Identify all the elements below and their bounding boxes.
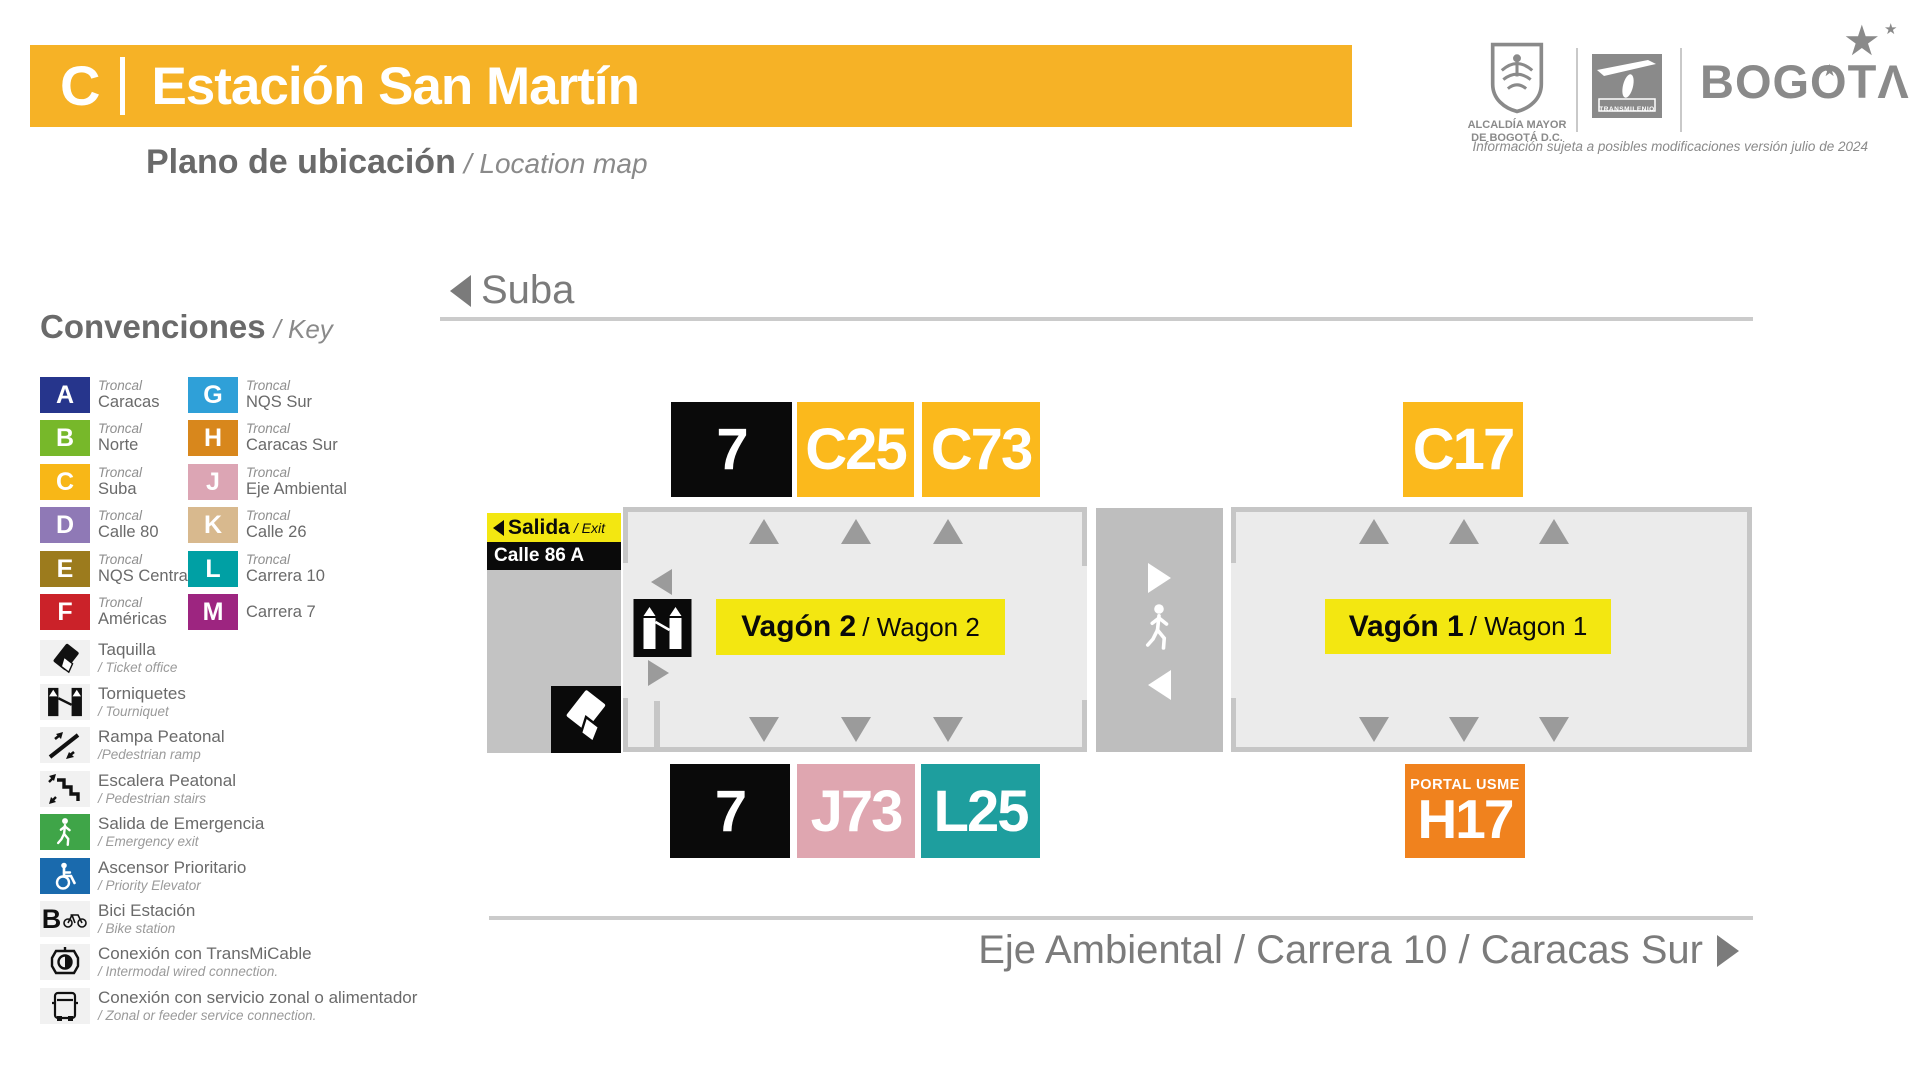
wagon-1-label-es: Vagón 1	[1349, 610, 1464, 644]
legend-item-transmicable: Conexión con TransMiCable/ Intermodal wi…	[40, 944, 312, 981]
station-name: Estación San Martín	[151, 60, 639, 113]
bogota-stylized-a: Λ	[1877, 55, 1909, 108]
legend-troncal-C: C TroncalSuba	[40, 464, 142, 500]
bus-icon	[40, 988, 90, 1024]
door-arrow-down-icon	[1539, 717, 1569, 742]
door-arrow-down-icon	[841, 717, 871, 742]
wagon-1-box: Vagón 1/ Wagon 1	[1231, 507, 1752, 752]
legend-item-taquilla: Taquilla/ Ticket office	[40, 640, 177, 677]
troncal-E-chip: E	[40, 551, 90, 587]
transmilenio-wordmark: TRANSMILENIO	[1592, 106, 1662, 113]
wagon-2-label-en: / Wagon 2	[862, 612, 980, 643]
exit-label-es: Salida	[508, 516, 570, 540]
troncal-J-chip: J	[188, 464, 238, 500]
arrow-left-icon	[1148, 670, 1171, 700]
pedestrian-icon	[1141, 596, 1177, 663]
alcaldia-shield-icon	[1486, 40, 1548, 116]
legend-title: Convenciones/ Key	[40, 308, 333, 346]
legend-title-en: / Key	[274, 314, 333, 344]
vestibule-wall	[654, 701, 660, 747]
escalera-icon	[40, 771, 90, 807]
door-arrow-down-icon	[1449, 717, 1479, 742]
legend-item-escalera: Escalera Peatonal/ Pedestrian stairs	[40, 771, 236, 808]
ascensor-icon	[40, 858, 90, 894]
troncal-A-chip: A	[40, 377, 90, 413]
salida-emergencia-icon	[40, 814, 90, 850]
rampa-icon	[40, 727, 90, 763]
legend-item-ascensor: Ascensor Prioritario/ Priority Elevator	[40, 858, 246, 895]
legend-troncal-D: D TroncalCalle 80	[40, 507, 159, 543]
h17-route-label: H17	[1418, 793, 1513, 845]
top-platform-line	[440, 317, 1753, 321]
legend-item-bus: Conexión con servicio zonal o alimentado…	[40, 988, 417, 1025]
route-badge-7-bottom: 7	[670, 764, 790, 858]
troncal-C-chip: C	[40, 464, 90, 500]
line-letter: C	[60, 58, 100, 114]
wagon-2-banner: Vagón 2/ Wagon 2	[716, 599, 1005, 655]
legend-troncal-H: H TroncalCaracas Sur	[188, 420, 338, 456]
alcaldia-logo: ALCALDÍA MAYOR DE BOGOTÁ D.C.	[1458, 40, 1576, 145]
legend-troncal-B: B TroncalNorte	[40, 420, 142, 456]
door-arrow-up-icon	[1359, 519, 1389, 544]
route-badge-7-top: 7	[671, 402, 792, 497]
star-icon: ★	[1884, 22, 1897, 37]
taquilla-icon	[40, 640, 90, 676]
legend-item-bici: B Bici Estación/ Bike station	[40, 901, 195, 938]
door-arrow-up-icon	[1449, 519, 1479, 544]
arrow-left-icon	[493, 520, 504, 536]
wagon-1-label-en: / Wagon 1	[1470, 611, 1588, 642]
route-badge-J73: J73	[797, 764, 915, 858]
subtitle: Plano de ubicación/ Location map	[146, 143, 648, 182]
bici-icon: B	[40, 901, 90, 937]
route-badge-C25: C25	[797, 402, 914, 497]
troncal-K-chip: K	[188, 507, 238, 543]
exit-street-label: Calle 86 A	[487, 542, 621, 570]
door-arrow-down-icon	[933, 717, 963, 742]
wagon-2-box: Vagón 2/ Wagon 2	[623, 507, 1087, 752]
troncal-D-chip: D	[40, 507, 90, 543]
exit-label-en: / Exit	[574, 520, 605, 536]
wagon-2-right-opening	[1082, 566, 1087, 700]
door-arrow-up-icon	[749, 519, 779, 544]
alcaldia-line1: ALCALDÍA MAYOR	[1458, 119, 1576, 132]
troncal-M-chip: M	[188, 594, 238, 630]
route-badge-H17: PORTAL USME H17	[1405, 764, 1525, 858]
arrow-right-icon	[1148, 563, 1171, 593]
troncal-G-chip: G	[188, 377, 238, 413]
taquilla-icon	[551, 686, 621, 753]
troncal-legend: A TroncalCaracas B TroncalNorte C Tronca…	[40, 377, 390, 639]
arrow-right-icon	[1717, 935, 1739, 967]
legend-title-es: Convenciones	[40, 308, 266, 345]
wagon-2-label-es: Vagón 2	[741, 610, 856, 644]
door-arrow-up-icon	[1539, 519, 1569, 544]
legend-troncal-K: K TroncalCalle 26	[188, 507, 307, 543]
troncal-B-chip: B	[40, 420, 90, 456]
bottom-platform-line	[489, 916, 1753, 920]
legend-item-torniquetes: Torniquetes/ Tourniquet	[40, 684, 186, 721]
direction-eje-ambiental: Eje Ambiental / Carrera 10 / Caracas Sur	[978, 928, 1753, 973]
door-arrow-up-icon	[841, 519, 871, 544]
torniquetes-icon	[633, 599, 692, 662]
wagon-1-banner: Vagón 1/ Wagon 1	[1325, 599, 1611, 654]
direction-suba: Suba	[440, 268, 574, 313]
subtitle-en: / Location map	[464, 148, 648, 179]
wagon-1-left-opening	[1231, 563, 1236, 698]
route-badge-L25: L25	[921, 764, 1040, 858]
direction-eje-ambiental-label: Eje Ambiental / Carrera 10 / Caracas Sur	[978, 928, 1703, 973]
arrow-right-icon	[648, 660, 669, 686]
pedestrian-corridor	[1096, 508, 1223, 752]
legend-troncal-L: L TroncalCarrera 10	[188, 551, 325, 587]
wagon-2-left-opening	[623, 563, 628, 698]
title-bar: C Estación San Martín	[30, 45, 1352, 127]
arrow-left-icon	[450, 275, 471, 307]
disclaimer-text: Información sujeta a posibles modificaci…	[1473, 139, 1868, 154]
star-icon: ★	[1822, 62, 1837, 79]
legend-troncal-G: G TroncalNQS Sur	[188, 377, 312, 413]
transmicable-icon	[40, 944, 90, 980]
legend-item-salida-emergencia: Salida de Emergencia/ Emergency exit	[40, 814, 264, 851]
legend-troncal-E: E TroncalNQS Central	[40, 551, 192, 587]
title-divider	[120, 57, 125, 115]
troncal-H-chip: H	[188, 420, 238, 456]
legend-troncal-M: M Carrera 7	[188, 594, 316, 630]
exit-walkway	[487, 570, 621, 753]
logo-separator	[1576, 48, 1578, 132]
troncal-L-chip: L	[188, 551, 238, 587]
star-icon: ★	[1843, 20, 1881, 62]
exit-banner: Salida/ Exit	[487, 513, 621, 542]
troncal-F-chip: F	[40, 594, 90, 630]
legend-item-rampa: Rampa Peatonal/Pedestrian ramp	[40, 727, 225, 764]
route-badge-C73: C73	[922, 402, 1040, 497]
logo-separator	[1680, 48, 1682, 132]
bogota-logo: BOGOTΛ	[1700, 58, 1910, 105]
legend-troncal-A: A TroncalCaracas	[40, 377, 159, 413]
route-badge-C17: C17	[1403, 402, 1523, 497]
door-arrow-up-icon	[933, 519, 963, 544]
arrow-left-icon	[651, 569, 672, 595]
station-location-map-poster: C Estación San Martín Plano de ubicación…	[0, 0, 1920, 1080]
legend-troncal-F: F TroncalAméricas	[40, 594, 167, 630]
door-arrow-down-icon	[749, 717, 779, 742]
subtitle-es: Plano de ubicación	[146, 143, 456, 181]
direction-suba-label: Suba	[481, 268, 574, 313]
transmilenio-logo: TRANSMILENIO	[1592, 54, 1662, 118]
legend-troncal-J: J TroncalEje Ambiental	[188, 464, 347, 500]
exit-zone: Salida/ Exit Calle 86 A	[487, 513, 621, 753]
torniquetes-icon	[40, 684, 90, 720]
door-arrow-down-icon	[1359, 717, 1389, 742]
